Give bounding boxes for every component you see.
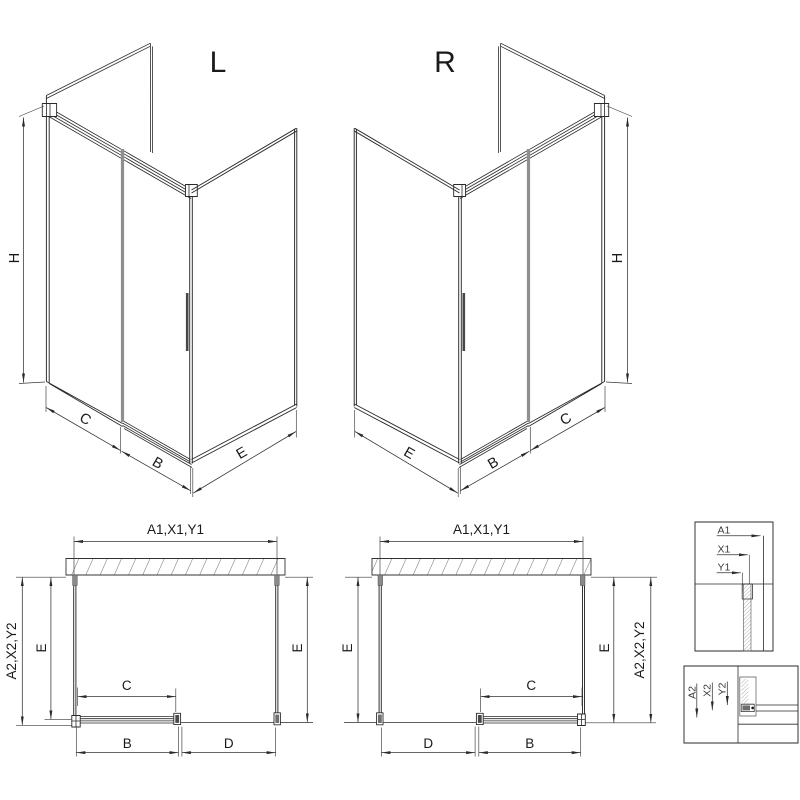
front-door-face: [529, 96, 605, 427]
wall-hatched: [372, 559, 591, 576]
bottom-rail: [344, 713, 585, 726]
dim-label-c: C: [526, 678, 536, 693]
dim-label-h: H: [610, 253, 626, 263]
dim-label-h: H: [7, 253, 23, 263]
technical-drawing-page: L H: [0, 0, 800, 800]
front-door-face: [46, 96, 122, 427]
detail-frame: [695, 522, 773, 651]
dimension-height: H: [7, 106, 45, 384]
dim-label-b: B: [123, 736, 132, 751]
plan-view-right: A1,X1,Y1 E E A2,X2,Y2 C D B: [340, 522, 657, 757]
dim-label-b: B: [149, 454, 165, 473]
dimension-side-e: E: [355, 410, 459, 497]
dimension-side-e: E: [193, 410, 296, 497]
dim-label-b: B: [485, 454, 501, 473]
side-panels: [378, 575, 585, 723]
top-rail: [42, 104, 197, 199]
bottom-rail: [72, 713, 313, 727]
iso-view-right: R H: [354, 43, 632, 497]
shower-enclosure-drawing: L H: [0, 0, 800, 800]
right-side-panel: [192, 128, 297, 463]
dimension-height: H: [606, 106, 632, 384]
dimension-depth-left: E: [340, 577, 372, 722]
dimension-rail-b: B: [76, 727, 178, 757]
dimension-depth-right: E: [285, 577, 313, 722]
dimension-opening-d: D: [381, 727, 475, 757]
front-corner-post: [190, 197, 193, 464]
detail-box-width: A1 X1 Y1: [695, 522, 773, 651]
dimension-fixed-c: C: [46, 386, 121, 454]
iso-view-left: L H: [7, 43, 297, 497]
top-rail: [454, 104, 609, 199]
plan-view-left: A1,X1,Y1 E A2,X2,Y2 E C B D: [4, 522, 313, 757]
dim-label-e-right: E: [290, 643, 305, 652]
dimension-rail-b: B: [479, 727, 581, 757]
detail-box-depth: A2 X2 Y2: [684, 666, 798, 743]
dim-label-a2x2y2: A2,X2,Y2: [632, 621, 647, 678]
wall-profile-right: [275, 575, 280, 586]
dim-label-c: C: [122, 678, 132, 693]
dim-label-d: D: [224, 736, 234, 751]
detail-label-a1: A1: [718, 525, 731, 537]
wall-hatched: [66, 559, 285, 576]
front-corner-post: [459, 197, 462, 464]
dimension-door-b: B: [122, 451, 191, 494]
detail-label-a2: A2: [687, 686, 699, 699]
left-side-panel: [354, 128, 459, 463]
detail-label-y1: Y1: [718, 562, 731, 574]
rail-end-cap-right: [594, 104, 608, 117]
view-label-left: L: [210, 46, 227, 79]
detail-label-x1: X1: [718, 544, 731, 556]
dim-label-a2x2y2: A2,X2,Y2: [4, 622, 19, 679]
rail-end-cap-left: [42, 104, 56, 117]
detail-label-y2: Y2: [717, 682, 729, 695]
dimension-depth-right: E A2,X2,Y2: [585, 577, 657, 723]
dim-label-e-right: E: [597, 643, 612, 652]
detail-label-x2: X2: [702, 684, 714, 697]
dim-label-e-left: E: [340, 643, 355, 652]
dimension-opening-d: D: [182, 727, 276, 757]
view-label-right: R: [434, 46, 456, 79]
profile-hatch: [741, 679, 748, 704]
dim-label-b: B: [525, 736, 534, 751]
dimension-door-glass-c: C: [481, 678, 582, 712]
dim-label-a1x1y1: A1,X1,Y1: [147, 522, 204, 537]
door-handle-plan: [476, 713, 483, 724]
dim-label-d: D: [423, 736, 433, 751]
dimension-fixed-c: C: [530, 386, 605, 454]
wall-profile-section: [743, 584, 751, 651]
dimension-door-glass-c: C: [78, 678, 176, 712]
dimension-depth-left: E A2,X2,Y2: [4, 577, 72, 725]
wall-profile-right: [580, 575, 585, 586]
fastener-dot: [751, 707, 754, 710]
wall-profile-left: [73, 575, 78, 586]
wall-profile-left: [378, 575, 383, 586]
door-handle-plan: [174, 713, 181, 724]
dim-label-e-left: E: [34, 643, 49, 652]
dimension-door-b: B: [460, 451, 529, 494]
dim-label-a1x1y1: A1,X1,Y1: [453, 522, 510, 537]
